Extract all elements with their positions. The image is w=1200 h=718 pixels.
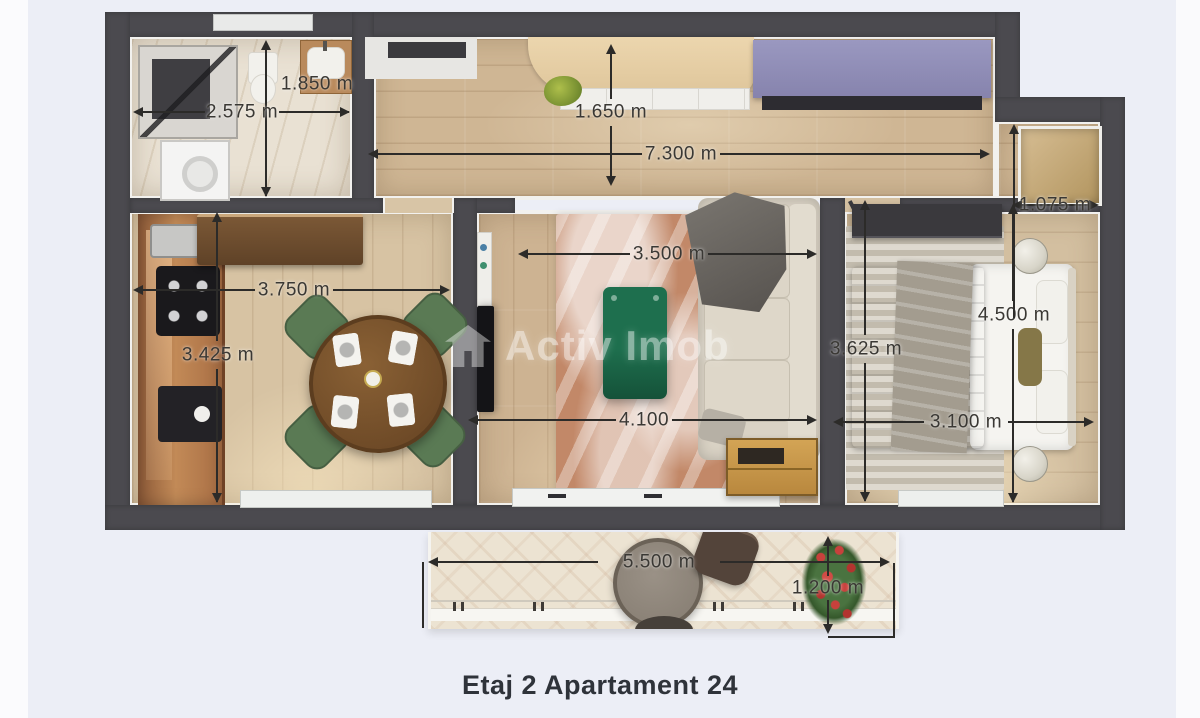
dimension-arrow-icon bbox=[212, 493, 222, 503]
wall-kitchen-living bbox=[453, 198, 477, 505]
dimension-line bbox=[520, 253, 630, 255]
dimension-line bbox=[422, 562, 424, 628]
dimension-line bbox=[333, 289, 448, 291]
dimension-line bbox=[828, 636, 895, 638]
dimension-arrow-icon bbox=[133, 107, 143, 117]
dimension-label-bathroom-depth: 1.850 m bbox=[281, 75, 353, 94]
dimension-arrow-icon bbox=[980, 149, 990, 159]
door-handle-icon bbox=[548, 494, 566, 498]
dimension-line bbox=[1012, 329, 1014, 502]
dimension-arrow-icon bbox=[860, 492, 870, 502]
dimension-label-hall-depth: 1.650 m bbox=[575, 103, 647, 122]
dimension-line bbox=[672, 419, 815, 421]
left-margin-strip bbox=[0, 0, 28, 718]
place-setting bbox=[332, 332, 362, 367]
dimension-arrow-icon bbox=[606, 176, 616, 186]
dimension-arrow-icon bbox=[468, 415, 478, 425]
dimension-line bbox=[216, 214, 218, 341]
dimension-line bbox=[893, 563, 895, 638]
dimension-arrow-icon bbox=[860, 200, 870, 210]
dimension-arrow-icon bbox=[833, 417, 843, 427]
rail-bracket-icon bbox=[713, 602, 716, 611]
dining-set bbox=[296, 302, 452, 458]
dimension-line bbox=[216, 369, 218, 502]
dimension-arrow-icon bbox=[261, 40, 271, 50]
dimension-line bbox=[708, 253, 815, 255]
dimension-label-kitchen-width: 3.750 m bbox=[258, 281, 330, 300]
tv bbox=[477, 306, 494, 412]
wall-bottom bbox=[105, 505, 1125, 530]
dimension-arrow-icon bbox=[1008, 493, 1018, 503]
dimension-label-living-length: 4.100 bbox=[619, 411, 669, 430]
dimension-label-bathroom-width: 2.575 m bbox=[206, 103, 278, 122]
table-leg-icon bbox=[653, 295, 659, 301]
rail-bracket-icon bbox=[541, 602, 544, 611]
dimension-line bbox=[864, 363, 866, 501]
dimension-arrow-icon bbox=[518, 249, 528, 259]
dimension-line bbox=[720, 153, 988, 155]
dimension-label-kitchen-depth: 3.425 m bbox=[182, 346, 254, 365]
dimension-line bbox=[470, 419, 616, 421]
bed-pillow-accent bbox=[1018, 328, 1042, 386]
dimension-label-balcony-width: 5.500 m bbox=[623, 553, 695, 572]
shower-glass bbox=[140, 47, 236, 137]
wall-left bbox=[105, 12, 130, 530]
washing-machine bbox=[160, 140, 230, 201]
dimension-arrow-icon bbox=[606, 44, 616, 54]
dimension-arrow-icon bbox=[340, 107, 350, 117]
place-setting bbox=[386, 393, 415, 428]
shower bbox=[138, 45, 238, 139]
dimension-line bbox=[135, 289, 255, 291]
dining-table bbox=[309, 315, 447, 453]
dimension-arrow-icon bbox=[261, 187, 271, 197]
appliance-dial-icon bbox=[194, 406, 210, 422]
rail-bracket-icon bbox=[721, 602, 724, 611]
dimension-arrow-icon bbox=[807, 415, 817, 425]
chest-opening bbox=[738, 448, 784, 464]
dimension-arrow-icon bbox=[368, 149, 378, 159]
dimension-arrow-icon bbox=[428, 557, 438, 567]
storage-chest bbox=[726, 438, 818, 496]
dimension-line bbox=[720, 561, 888, 563]
wall-right bbox=[1100, 97, 1125, 530]
dimension-arrow-icon bbox=[880, 557, 890, 567]
dimension-label-bedroom-depth: 3.625 m bbox=[830, 340, 902, 359]
dimension-arrow-icon bbox=[807, 249, 817, 259]
place-setting bbox=[330, 395, 359, 430]
dimension-line bbox=[430, 561, 598, 563]
decor-bottle-icon bbox=[480, 262, 487, 269]
door-handle-icon bbox=[644, 494, 662, 498]
dimension-arrow-icon bbox=[823, 624, 833, 634]
wall-shelf bbox=[477, 232, 492, 306]
bathroom-window bbox=[213, 14, 313, 31]
dimension-label-niche-width: 1.075 m bbox=[1019, 196, 1091, 215]
dimension-label-bedroom-width: 3.100 m bbox=[930, 413, 1002, 432]
centerpiece bbox=[366, 372, 380, 386]
dimension-label-living-width: 3.500 m bbox=[633, 245, 705, 264]
kitchen-door-opening bbox=[383, 198, 454, 213]
dimension-line bbox=[864, 202, 866, 335]
dimension-arrow-icon bbox=[1084, 417, 1094, 427]
faucet-icon bbox=[323, 41, 327, 51]
decor-bottle-icon bbox=[480, 244, 487, 251]
dimension-line bbox=[1008, 421, 1092, 423]
rail-bracket-icon bbox=[533, 602, 536, 611]
nightstand bbox=[1012, 238, 1048, 274]
sideboard-purple bbox=[753, 40, 991, 98]
kitchen-window bbox=[240, 490, 432, 508]
dimension-arrow-icon bbox=[823, 536, 833, 546]
place-setting bbox=[387, 330, 418, 366]
kitchen-appliance bbox=[158, 386, 222, 442]
right-margin-strip bbox=[1176, 0, 1200, 718]
dimension-label-overall-width: 7.300 m bbox=[645, 145, 717, 164]
bedroom-window bbox=[898, 490, 1004, 507]
dimension-arrow-icon bbox=[1009, 124, 1019, 134]
toilet-seat bbox=[250, 74, 276, 104]
dimension-label-balcony-depth: 1.200 m bbox=[792, 579, 864, 598]
dimension-arrow-icon bbox=[133, 285, 143, 295]
dimension-line bbox=[135, 111, 205, 113]
dimension-line bbox=[279, 111, 349, 113]
nightstand bbox=[1012, 446, 1048, 482]
dimension-line bbox=[1013, 126, 1015, 318]
page-title: Etaj 2 Apartament 24 bbox=[0, 670, 1200, 701]
dimension-arrow-icon bbox=[212, 212, 222, 222]
rail-bracket-icon bbox=[461, 602, 464, 611]
sideboard-shelf-shadow bbox=[762, 96, 982, 110]
washer-door-icon bbox=[182, 156, 218, 192]
entry-doormat bbox=[388, 42, 466, 58]
bedroom-dresser bbox=[852, 204, 1002, 238]
rail-bracket-icon bbox=[793, 602, 796, 611]
dimension-line bbox=[835, 421, 924, 423]
rail-bracket-icon bbox=[453, 602, 456, 611]
floor-plan-page: 1.850 m 2.575 m 1.650 m 7.300 m 3.500 m … bbox=[0, 0, 1200, 718]
dimension-line bbox=[370, 153, 642, 155]
headboard bbox=[1068, 268, 1076, 446]
cooktop bbox=[156, 266, 220, 336]
chest-lid-line bbox=[728, 468, 812, 470]
table-leg-icon bbox=[611, 295, 617, 301]
dimension-arrow-icon bbox=[440, 285, 450, 295]
coffee-table bbox=[603, 287, 667, 399]
